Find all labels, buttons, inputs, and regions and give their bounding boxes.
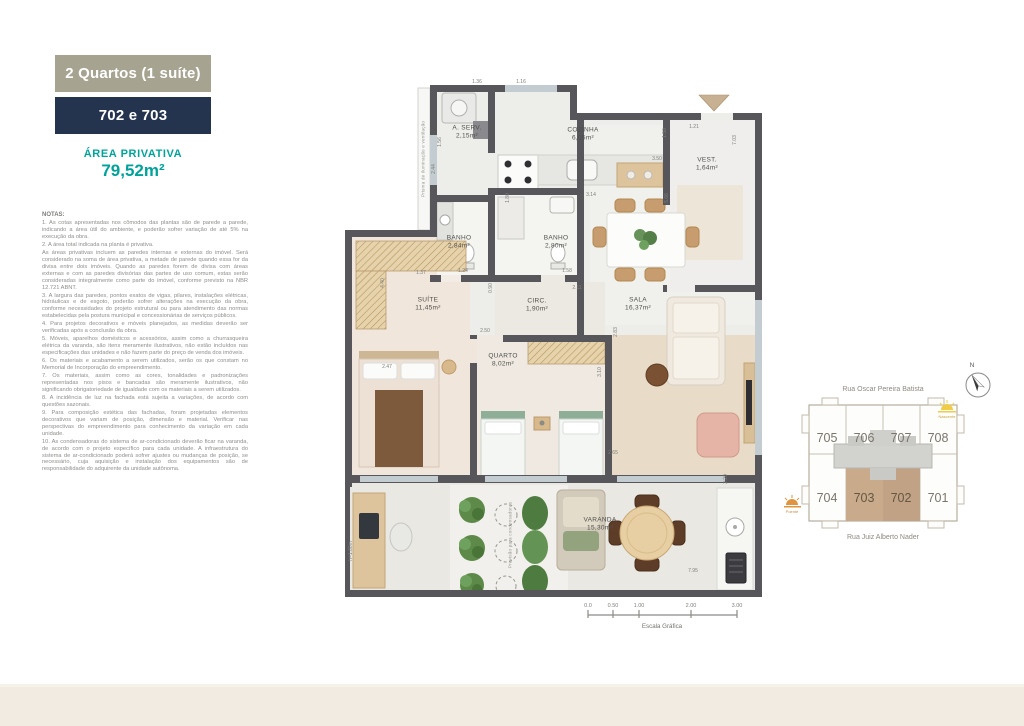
room-label: SUÍTE11,45m² <box>415 297 440 314</box>
north-compass-icon: N <box>966 362 990 397</box>
varanda-plants <box>459 497 485 597</box>
unit-702: 702 <box>891 491 912 505</box>
street-name-bottom: Rua Juiz Alberto Nader <box>847 534 920 541</box>
unit-numbers-badge: 702 e 703 <box>55 97 211 134</box>
unit-706: 706 <box>854 431 875 445</box>
varanda-hedge <box>522 496 548 597</box>
scale-tick: 3.00 <box>732 603 743 609</box>
note-line: 7. Os materiais, assim como as cores, to… <box>42 373 248 394</box>
unit-701: 701 <box>928 491 949 505</box>
dimension-label: 2.11 <box>572 285 581 291</box>
coffee-table <box>646 364 668 386</box>
dimension-label: 2.44 <box>431 164 437 174</box>
room-label: SALA16,37m² <box>625 297 651 314</box>
room-label: CIRC.1,90m² <box>526 298 548 315</box>
footer-bar <box>0 684 1024 726</box>
dimension-label: 3.50 <box>652 156 662 162</box>
unit-705: 705 <box>817 431 838 445</box>
armchair <box>697 413 739 457</box>
note-line: 5. Móveis, aparelhos domésticos e acessó… <box>42 336 248 357</box>
kitchen-cabinet <box>617 163 663 187</box>
unit-704: 704 <box>817 491 838 505</box>
room-label: A. SERV.2,15m² <box>452 125 481 142</box>
room-label: COZINHA6,05m² <box>567 127 598 144</box>
dimension-label: 1.56 <box>437 137 443 147</box>
sofa <box>667 297 725 385</box>
room-label: VARANDA15,30m² <box>583 517 616 534</box>
notes-title: NOTAS: <box>42 212 248 218</box>
room-label: BANHO2,84m² <box>447 235 472 252</box>
note-line: As áreas privativas incluem as paredes i… <box>42 250 248 292</box>
unit-type-badge: 2 Quartos (1 suíte) <box>55 55 211 92</box>
unit-numbers-label: 702 e 703 <box>99 107 168 124</box>
dimension-label: 2.20 <box>723 474 729 484</box>
unit-type-label: 2 Quartos (1 suíte) <box>65 65 201 82</box>
dimension-label: 1.50 <box>662 128 668 138</box>
dimension-label: 2.50 <box>480 328 490 334</box>
private-area-title: ÁREA PRIVATIVA <box>55 148 211 160</box>
unit-703: 703 <box>854 491 875 505</box>
sun-rising-label: Nascente <box>939 414 957 419</box>
private-area-value: 79,52m² <box>55 161 211 181</box>
note-line: 8. A incidência de luz na fachada está s… <box>42 395 248 409</box>
notes-block: NOTAS: 1. As cotas apresentadas nos cômo… <box>42 212 248 474</box>
sun-setting-icon: Poente <box>784 495 801 514</box>
grill-icon <box>726 553 746 583</box>
scale-bar-line <box>588 610 737 618</box>
dimension-label: 1.36 <box>472 79 482 85</box>
dimension-label: 1.80 <box>505 193 511 203</box>
kitchen-counter <box>538 155 663 187</box>
note-line: 6. Os materiais e acabamento a serem uti… <box>42 358 248 372</box>
dimension-label: 4.40 <box>380 278 386 288</box>
unit-707: 707 <box>891 431 912 445</box>
plan-annotation: Prisma de iluminação e ventilação <box>421 121 426 197</box>
tv-sideboard <box>744 363 755 443</box>
kitchen-stove <box>498 155 538 189</box>
dimension-label: 3.10 <box>597 367 603 377</box>
plan-annotation: Previsão para condensadoras <box>508 502 513 568</box>
dimension-label: 1.58 <box>562 268 572 274</box>
room-label: BANHO2,80m² <box>544 235 569 252</box>
dimension-label: 3.14 <box>586 192 596 198</box>
dimension-label: 1.24 <box>458 268 468 274</box>
note-line: 10. As condensadoras do sistema de ar-co… <box>42 439 248 474</box>
dimension-label: 2.47 <box>382 364 392 370</box>
sun-setting-label: Poente <box>786 509 799 514</box>
scale-bar: 0.0 0.50 1.00 2.00 3.00 Escala Gráfica <box>575 598 745 632</box>
dimension-label: 2.65 <box>608 450 618 456</box>
notes-lines: 1. As cotas apresentadas nos cômodos das… <box>42 220 248 473</box>
dimension-label: 1.21 <box>689 124 699 130</box>
side-table <box>442 360 456 374</box>
room-label: QUARTO8,02m² <box>488 353 517 370</box>
dimension-label: 0.90 <box>488 283 494 293</box>
varanda-counter <box>717 488 753 590</box>
brochure-page: 2 Quartos (1 suíte) 702 e 703 ÁREA PRIVA… <box>0 0 1024 726</box>
note-line: 4. Para projetos decorativos e móveis pl… <box>42 321 248 335</box>
note-line: 1. As cotas apresentadas nos cômodos das… <box>42 220 248 241</box>
key-plan: Rua Oscar Pereira Batista N <box>782 358 1018 550</box>
unit-708: 708 <box>928 431 949 445</box>
dimension-label: 2.83 <box>613 327 619 337</box>
scale-tick: 1.00 <box>634 603 645 609</box>
room-label: VEST.1,64m² <box>696 157 718 174</box>
dimension-label: 7.95 <box>688 568 698 574</box>
scale-bar-label: Escala Gráfica <box>642 623 683 630</box>
scale-tick: 2.00 <box>686 603 697 609</box>
dimension-label: 5.66 <box>664 193 670 203</box>
north-label: N <box>970 362 975 369</box>
scale-tick: 0.0 <box>584 603 592 609</box>
street-name-top: Rua Oscar Pereira Batista <box>842 386 923 393</box>
dimension-label: 1.37 <box>416 270 426 276</box>
note-line: 9. Para composição estética das fachadas… <box>42 410 248 438</box>
floor-plan: A. SERV.2,15m²COZINHA6,05m²VEST.1,64m²BA… <box>345 85 762 597</box>
entry-arrow-icon <box>699 95 729 111</box>
vest-rug <box>677 185 743 260</box>
dimension-label: 7.03 <box>732 135 738 145</box>
dimension-label: h=1.80m <box>348 541 354 561</box>
dimension-label: 1.16 <box>516 79 526 85</box>
note-line: 3. A largura das paredes, pontos exatos … <box>42 293 248 321</box>
note-line: 2. A área total indicada na planta é pri… <box>42 242 248 249</box>
scale-tick: 0.50 <box>608 603 619 609</box>
